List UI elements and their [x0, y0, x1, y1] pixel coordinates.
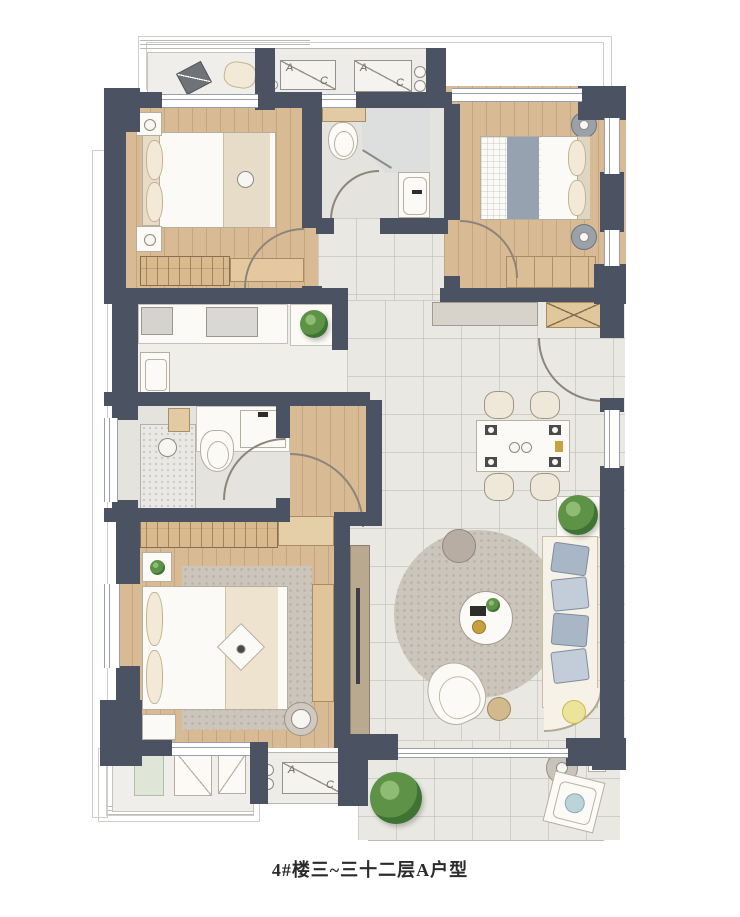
ac-letter-c: C [320, 75, 328, 88]
sofa-cushion [551, 612, 590, 647]
shower-head [158, 438, 177, 457]
wall-segment [112, 292, 138, 406]
ac-unit-north-2: A C [354, 60, 412, 92]
pillow [146, 182, 163, 222]
bathroom-1-tub [398, 172, 430, 218]
toilet-bowl [207, 441, 229, 469]
bathroom-1-toilet [328, 122, 358, 160]
ac-unit-south: A C [282, 762, 342, 794]
wall-segment [302, 106, 322, 228]
living-balcony-slider [398, 748, 568, 758]
chair-inner [291, 709, 311, 729]
dining-east-window [604, 410, 620, 468]
kitchen-appliance [141, 307, 173, 335]
pillow [146, 592, 163, 646]
floor-plan-canvas: A C A C A C [0, 0, 740, 917]
bathroom-2-shower [140, 424, 196, 510]
desk-chair [284, 702, 318, 736]
dining-plant [558, 495, 598, 535]
ac-letter-c: C [326, 779, 334, 792]
bedroom-2-blanket [507, 137, 539, 219]
wall-segment [332, 302, 348, 350]
sofa-cushion [550, 648, 590, 684]
wall-segment [116, 516, 140, 584]
master-bed [142, 586, 288, 710]
wall-segment [566, 738, 626, 766]
wall-segment [440, 288, 626, 302]
kitchen-cooktop [206, 307, 258, 337]
sofa-cushion [550, 576, 589, 612]
sofa-cushion [550, 542, 590, 577]
plate [552, 427, 558, 433]
ac-letter-a: A [288, 764, 295, 777]
ac-pipe-hole [414, 66, 426, 78]
balcony-door-window [162, 94, 258, 108]
coffee-table [459, 591, 513, 645]
master-desk [312, 584, 334, 702]
bedroom-1-bed [158, 132, 276, 228]
place-setting [485, 425, 497, 435]
wall-segment [100, 700, 142, 766]
wall-segment [116, 666, 140, 702]
pillow [568, 140, 586, 176]
master-nightstand [142, 552, 172, 582]
ac-letter-a: A [286, 62, 293, 75]
side-table [487, 697, 511, 721]
wall-segment [104, 392, 370, 406]
kitchen-plant [300, 310, 328, 338]
bedroom-2-north-window [452, 88, 582, 102]
coffee-table-tray [470, 606, 486, 616]
storage-box [218, 754, 246, 794]
ac-letter-c: C [396, 77, 404, 90]
bedroom-1-wardrobe [140, 256, 230, 286]
wall-segment [316, 218, 334, 234]
wall-segment [334, 520, 350, 748]
pouf [442, 529, 476, 563]
wall-segment [118, 740, 172, 756]
plate [488, 427, 494, 433]
coffee-table-bowl [472, 620, 486, 634]
bathroom-1-vanity [322, 106, 366, 122]
pillow [146, 140, 163, 180]
bathroom-1-window [322, 94, 356, 108]
place-setting [549, 425, 561, 435]
toilet-bowl [334, 131, 354, 157]
wall-segment [104, 288, 348, 304]
ac-unit-north-1: A C [280, 60, 336, 90]
ac-pipe-hole [414, 80, 426, 92]
master-bedroom-window [104, 584, 120, 668]
bedroom-2-nightstand [571, 224, 597, 250]
lamp [144, 234, 156, 246]
kitchen-sink [140, 352, 170, 394]
place-setting [549, 457, 561, 467]
plate [552, 459, 558, 465]
sink-basin [145, 359, 167, 391]
lemon-tray [562, 700, 586, 724]
wall-segment [600, 302, 624, 338]
wall-segment [380, 218, 448, 234]
dining-chair [484, 391, 514, 419]
wall-segment [276, 404, 290, 438]
ac-letter-a: A [360, 62, 367, 75]
plan-caption: 4#楼三~三十二层A户型 [0, 856, 740, 882]
bedroom-1-nightstand [136, 226, 162, 252]
bathroom-2-window [104, 418, 118, 502]
wall-segment [600, 172, 624, 232]
lamp [579, 120, 589, 130]
pillow [568, 180, 586, 216]
sink-faucet [258, 412, 268, 417]
wall-segment [366, 400, 382, 518]
tv-screen [356, 588, 360, 684]
wall-segment [104, 128, 126, 292]
wall-segment [578, 86, 626, 120]
nightstand-plant [150, 560, 165, 575]
bathroom-2-shelf [168, 408, 190, 432]
storage-box [174, 750, 212, 796]
bedroom-2-east-window-1 [604, 118, 620, 174]
bedroom-2-east-window-2 [604, 230, 620, 266]
place-setting [485, 457, 497, 467]
dining-table [476, 420, 570, 472]
table-decor [521, 442, 532, 453]
bedroom-2-dresser [506, 256, 596, 288]
balcony-plant [370, 772, 422, 824]
pillow [146, 650, 163, 704]
wall-segment [600, 466, 624, 742]
plate [488, 459, 494, 465]
wall-segment [444, 104, 460, 220]
tub-faucet [412, 190, 422, 194]
master-balcony-window [172, 742, 250, 756]
table-decor-gold [555, 441, 563, 452]
decor-dot [235, 643, 248, 656]
lamp [579, 232, 589, 242]
table-decor [509, 442, 520, 453]
wall-segment [358, 734, 398, 760]
tub-inner [403, 177, 427, 215]
wall-segment [126, 92, 162, 108]
dining-chair [530, 391, 560, 419]
wall-segment [426, 48, 446, 108]
wall-segment [250, 742, 268, 804]
master-nightstand [142, 714, 176, 740]
coffee-table-plant [486, 598, 500, 612]
tv-console [350, 545, 370, 743]
dining-sideboard [432, 302, 538, 326]
entry-shoe-cabinet [546, 302, 602, 328]
lamp [144, 119, 156, 131]
bathroom-2-toilet [200, 430, 234, 472]
bed-button [237, 171, 254, 188]
dining-chair [484, 473, 514, 501]
